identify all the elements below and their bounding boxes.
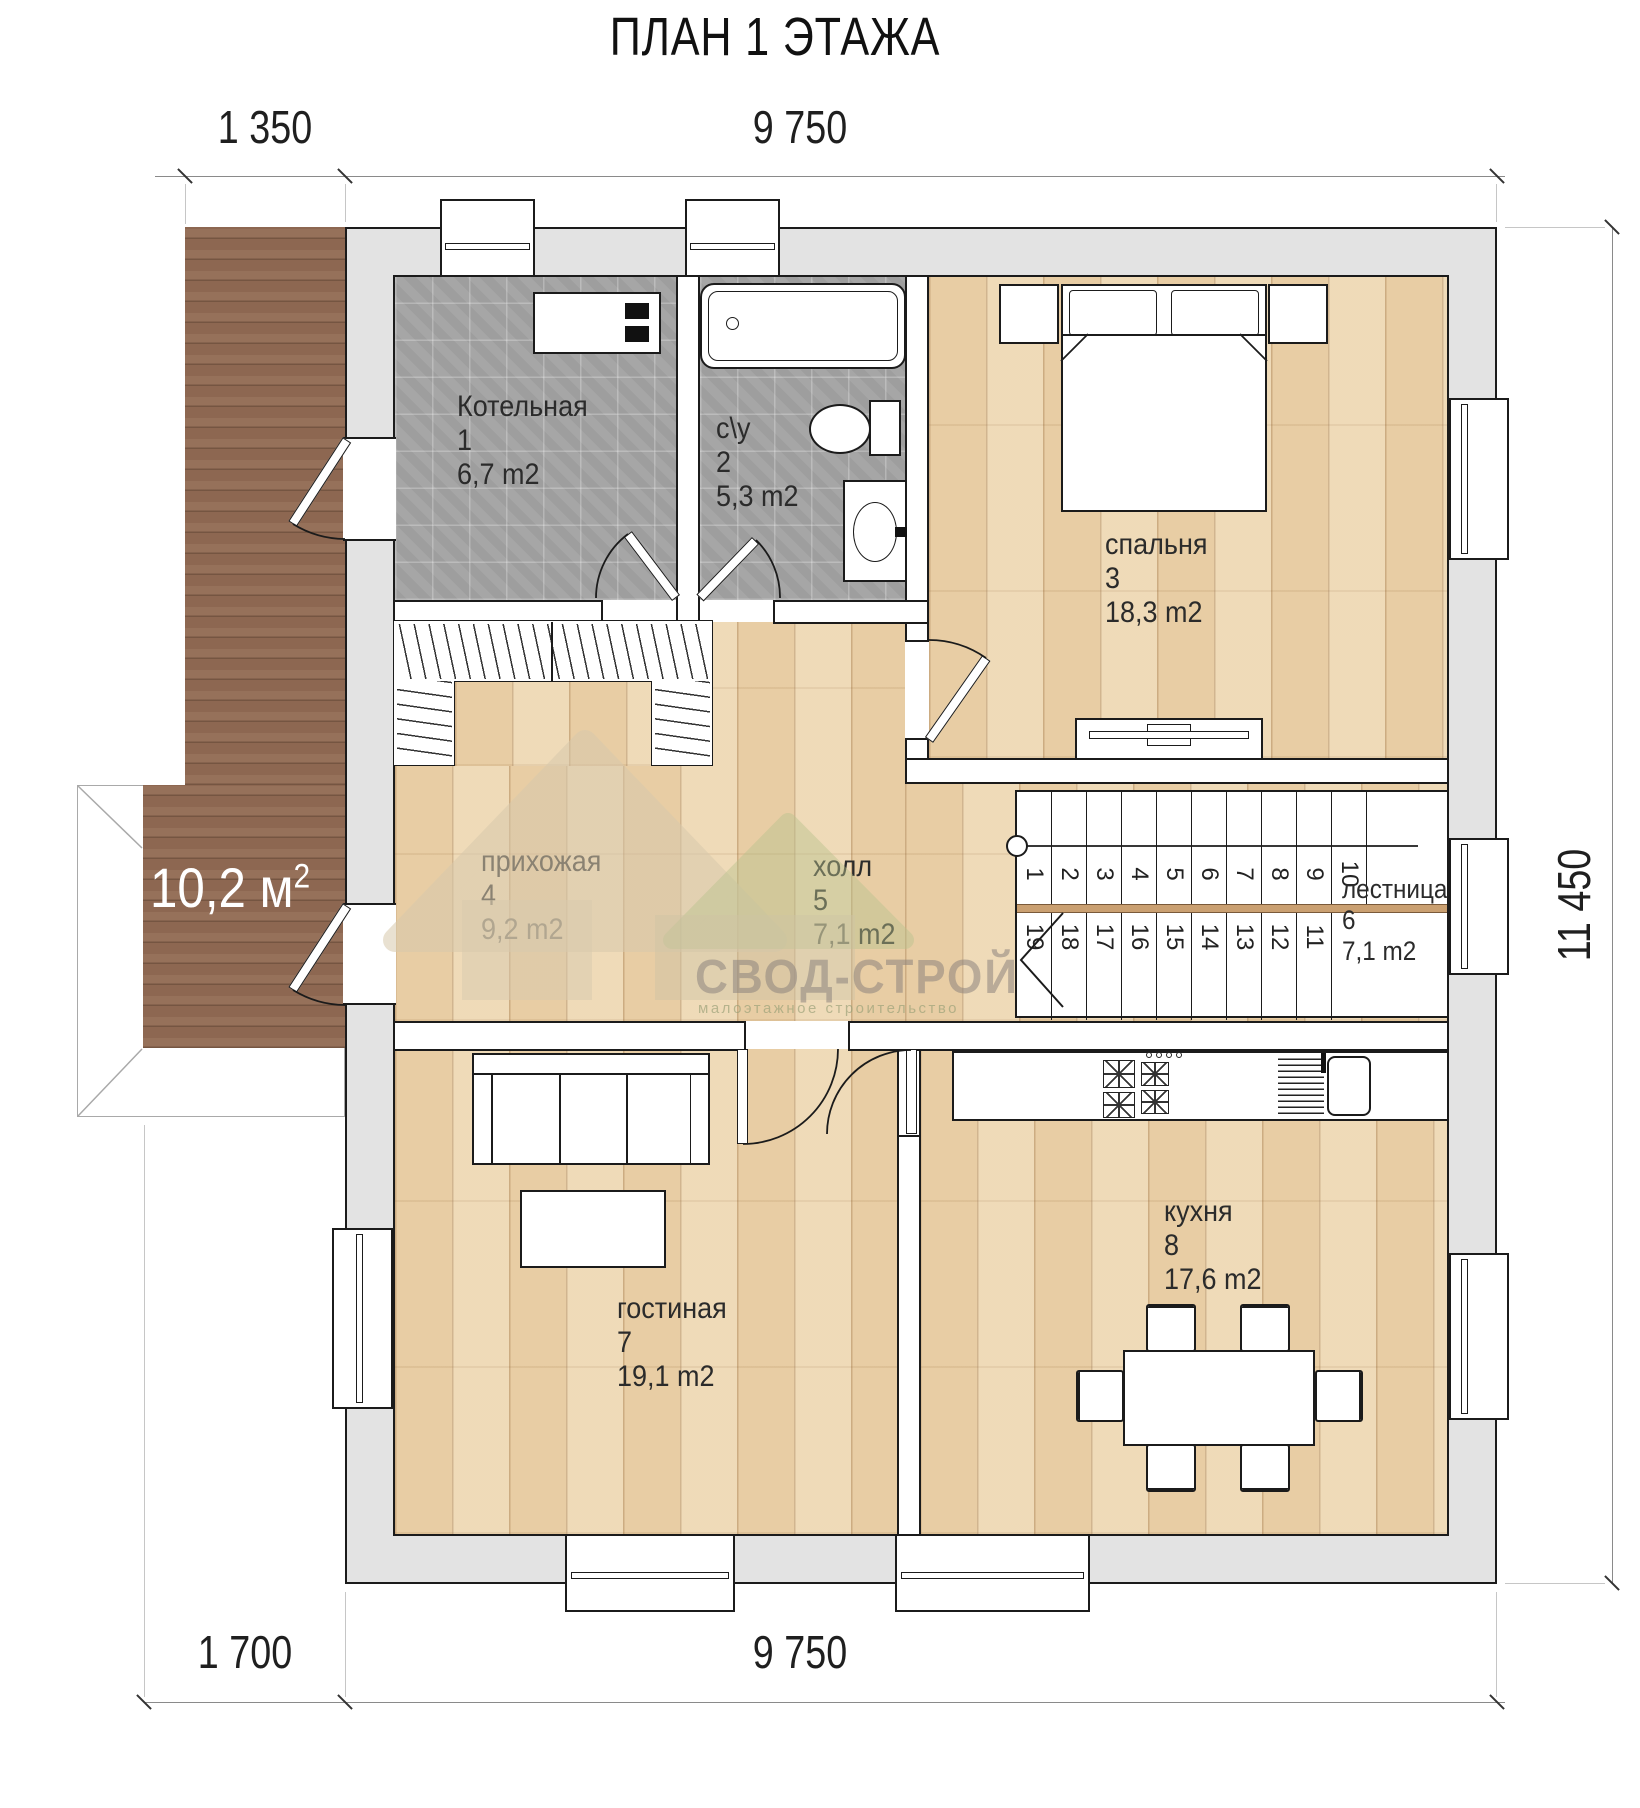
dining-table (1123, 1350, 1315, 1446)
window-living-west (332, 1228, 393, 1409)
extension-line (1496, 184, 1497, 222)
stair-step-number: 5 (1160, 867, 1188, 880)
stair-step: 12 (1262, 913, 1297, 1020)
stair-step: 16 (1122, 913, 1157, 1020)
door-opening-terrace-boiler (343, 437, 396, 541)
room-number: 7 (617, 1326, 727, 1360)
room-area: 18,3 m2 (1105, 596, 1208, 630)
stair-step-number: 2 (1055, 867, 1083, 880)
stair-step: 7 (1227, 792, 1262, 904)
room-number: 4 (481, 879, 601, 913)
stair-step-number: 12 (1265, 924, 1293, 951)
extension-line (1496, 1592, 1497, 1697)
sink-tap (895, 527, 907, 537)
extension-line (185, 184, 186, 224)
stove-burner (1103, 1060, 1135, 1088)
dimension-value: 1 350 (218, 101, 312, 153)
window-stairs-east (1449, 838, 1509, 975)
toilet-bowl (809, 404, 871, 454)
dimension-bottom-left: 1 700 (163, 1625, 327, 1679)
room-label-stairs: лестница 6 7,1 m2 (1342, 874, 1447, 966)
floor-plan-canvas: 10,2 м2 (0, 0, 1640, 1808)
boiler-unit (533, 292, 661, 354)
dimension-top-left: 1 350 (183, 100, 347, 154)
blanket-edge (1061, 334, 1267, 336)
room-name: спальня (1105, 528, 1208, 562)
sink-basin (853, 502, 897, 562)
bathtub-drain (726, 317, 739, 330)
stair-step: 11 (1297, 913, 1332, 1020)
terrace-area-value: 10,2 м (150, 856, 293, 919)
dining-chair (1076, 1370, 1124, 1422)
stove-knob (1156, 1052, 1162, 1058)
pillow-right (1171, 290, 1259, 336)
stair-step-number: 8 (1265, 867, 1293, 880)
room-name: лестница (1342, 874, 1447, 905)
stair-step-number: 6 (1195, 867, 1223, 880)
wall-wet-south-right (773, 600, 929, 624)
stair-step: 4 (1122, 792, 1157, 904)
room-label-hallway: прихожая 4 9,2 m2 (481, 845, 601, 948)
room-label-boiler: Котельная 1 6,7 m2 (457, 390, 588, 493)
kitchen-sink-basin (1327, 1056, 1371, 1116)
page-title: ПЛАН 1 ЭТАЖА (431, 6, 1119, 68)
sofa-seat-divider (626, 1073, 628, 1163)
stair-step-number: 13 (1230, 924, 1258, 951)
room-number: 8 (1164, 1229, 1262, 1263)
stair-step-number: 9 (1300, 867, 1328, 880)
window-living-south (565, 1534, 735, 1612)
room-name: кухня (1164, 1195, 1262, 1229)
room-name: прихожая (481, 845, 601, 879)
dimension-line-top (155, 176, 1505, 177)
wall-boiler-bath (676, 275, 700, 622)
door-leaf-kitchen (906, 1049, 917, 1134)
stove-burner (1141, 1062, 1169, 1086)
stair-step-number: 11 (1300, 925, 1328, 950)
kitchen-tap (1321, 1053, 1326, 1073)
wall-hall-living (393, 1021, 746, 1051)
extension-line (1505, 1583, 1605, 1584)
sofa-armrest-right (690, 1073, 692, 1163)
room-name: холл (813, 850, 896, 884)
room-area: 6,7 m2 (457, 458, 588, 492)
stair-step: 2 (1052, 792, 1087, 904)
window-bedroom-east (1449, 398, 1509, 560)
dimension-top-main: 9 750 (693, 100, 906, 154)
dimension-value: 9 750 (753, 1626, 847, 1678)
door-opening-bath (700, 602, 773, 622)
stair-step: 8 (1262, 792, 1297, 904)
window-kitchen-east (1449, 1253, 1509, 1420)
pillow-left (1069, 290, 1157, 336)
toilet-tank (869, 400, 901, 456)
kitchen-counter (952, 1051, 1449, 1121)
stair-step: 1 (1017, 792, 1052, 904)
dimension-bottom-main: 9 750 (693, 1625, 906, 1679)
dining-chair (1146, 1444, 1196, 1492)
wardrobe-rail-top (397, 624, 709, 679)
page-title-text: ПЛАН 1 ЭТАЖА (610, 7, 941, 67)
wall-bath-bedroom (905, 275, 929, 622)
stair-step: 5 (1157, 792, 1192, 904)
terrace-area-sup: 2 (293, 857, 310, 895)
door-opening-terrace-hallway (343, 903, 396, 1005)
room-label-kitchen: кухня 8 17,6 m2 (1164, 1195, 1262, 1298)
room-name: Котельная (457, 390, 588, 424)
room-area: 19,1 m2 (617, 1360, 727, 1394)
stair-step: 3 (1087, 792, 1122, 904)
stair-step-number: 19 (1020, 924, 1048, 951)
window-bath (685, 199, 780, 277)
sofa (472, 1053, 710, 1165)
wall-hall-bedroom-upper (905, 622, 929, 642)
dining-chair (1146, 1304, 1196, 1352)
stair-step: 9 (1297, 792, 1332, 904)
boiler-panel-2 (625, 326, 649, 342)
stair-step-number: 16 (1125, 924, 1153, 951)
nightstand-right (1268, 284, 1328, 344)
wall-living-kitchen (897, 1135, 921, 1536)
room-area: 7,1 m2 (813, 918, 896, 952)
room-label-hall: холл 5 7,1 m2 (813, 850, 896, 953)
stove-knob (1176, 1052, 1182, 1058)
sink-drainboard (1278, 1058, 1324, 1114)
dimension-value: 9 750 (753, 101, 847, 153)
room-number: 5 (813, 884, 896, 918)
dining-chair (1315, 1370, 1363, 1422)
extension-line (345, 184, 346, 222)
staircase: 1 2 3 4 5 6 7 8 9 10 19 18 17 16 15 14 1… (1015, 790, 1449, 1018)
stair-step-number: 4 (1125, 867, 1153, 880)
sofa-armrest-left (491, 1073, 493, 1163)
wall-stairs-kitchen (848, 1021, 1449, 1051)
room-number: 6 (1342, 905, 1447, 936)
watermark-tagline-text: малоэтажное строительство (698, 1000, 959, 1017)
wall-bedroom-stairs (905, 758, 1449, 784)
stair-step: 6 (1192, 792, 1227, 904)
sofa-seat-divider (559, 1073, 561, 1163)
wardrobe-rail-left (397, 681, 452, 762)
stove-knob (1166, 1052, 1172, 1058)
dining-chair (1240, 1444, 1290, 1492)
tv-screen (1089, 731, 1249, 739)
coffee-table (520, 1190, 666, 1268)
dimension-value: 11 450 (1548, 849, 1600, 962)
stair-step-number: 1 (1020, 867, 1048, 880)
room-number: 2 (716, 446, 799, 480)
room-number: 1 (457, 424, 588, 458)
door-leaf-living (737, 1049, 748, 1144)
room-area: 9,2 m2 (481, 913, 601, 947)
nightstand-left (999, 284, 1059, 344)
room-name: с\у (716, 412, 799, 446)
wardrobe-divider (551, 622, 553, 681)
stair-step: 18 (1052, 913, 1087, 1020)
extension-line (144, 1125, 145, 1697)
room-area: 5,3 m2 (716, 480, 799, 514)
sofa-backrest-line (474, 1073, 708, 1075)
room-area: 17,6 m2 (1164, 1263, 1262, 1297)
room-label-bedroom: спальня 3 18,3 m2 (1105, 528, 1208, 631)
extension-line (1505, 227, 1605, 228)
watermark-brand-text: СВОД-СТРОЙ (695, 950, 1019, 1005)
room-number: 3 (1105, 562, 1208, 596)
room-label-wc: с\у 2 5,3 m2 (716, 412, 799, 515)
stair-step: 17 (1087, 913, 1122, 1020)
watermark-tagline: малоэтажное строительство (698, 1000, 959, 1017)
stair-step-number: 15 (1160, 924, 1188, 951)
terrace-area-label: 10,2 м2 (150, 855, 310, 920)
stair-step-number: 7 (1230, 867, 1258, 880)
door-opening-bedroom (905, 642, 929, 738)
terrace-deck-upper (185, 227, 345, 785)
dimension-value: 1 700 (198, 1626, 292, 1678)
stair-step: 14 (1192, 913, 1227, 1020)
watermark-brand: СВОД-СТРОЙ (695, 951, 1019, 1004)
stair-step-number: 17 (1090, 924, 1118, 951)
dimension-line-right (1612, 227, 1613, 1584)
extension-line (345, 1592, 346, 1697)
wardrobe-rail-right (655, 681, 710, 762)
window-boiler (440, 199, 535, 277)
window-kitchen-south (895, 1534, 1090, 1612)
stair-step: 19 (1017, 913, 1052, 1020)
stair-step: 15 (1157, 913, 1192, 1020)
stair-step-number: 3 (1090, 867, 1118, 880)
stair-step-number: 14 (1195, 924, 1223, 951)
door-opening-living (746, 1023, 848, 1049)
wardrobe-inner-floor (454, 681, 652, 766)
dimension-right: 11 450 (1547, 798, 1597, 1011)
stair-step-number: 18 (1055, 924, 1083, 951)
boiler-panel-1 (625, 303, 649, 319)
room-label-living: гостиная 7 19,1 m2 (617, 1292, 727, 1395)
room-area: 7,1 m2 (1342, 936, 1447, 967)
room-name: гостиная (617, 1292, 727, 1326)
stove-burner (1141, 1090, 1169, 1114)
stove-burner (1103, 1092, 1135, 1118)
dining-chair (1240, 1304, 1290, 1352)
wall-hall-bedroom-lower (905, 738, 929, 760)
door-opening-boiler (603, 602, 676, 622)
stove-knob (1146, 1052, 1152, 1058)
stair-step: 13 (1227, 913, 1262, 1020)
